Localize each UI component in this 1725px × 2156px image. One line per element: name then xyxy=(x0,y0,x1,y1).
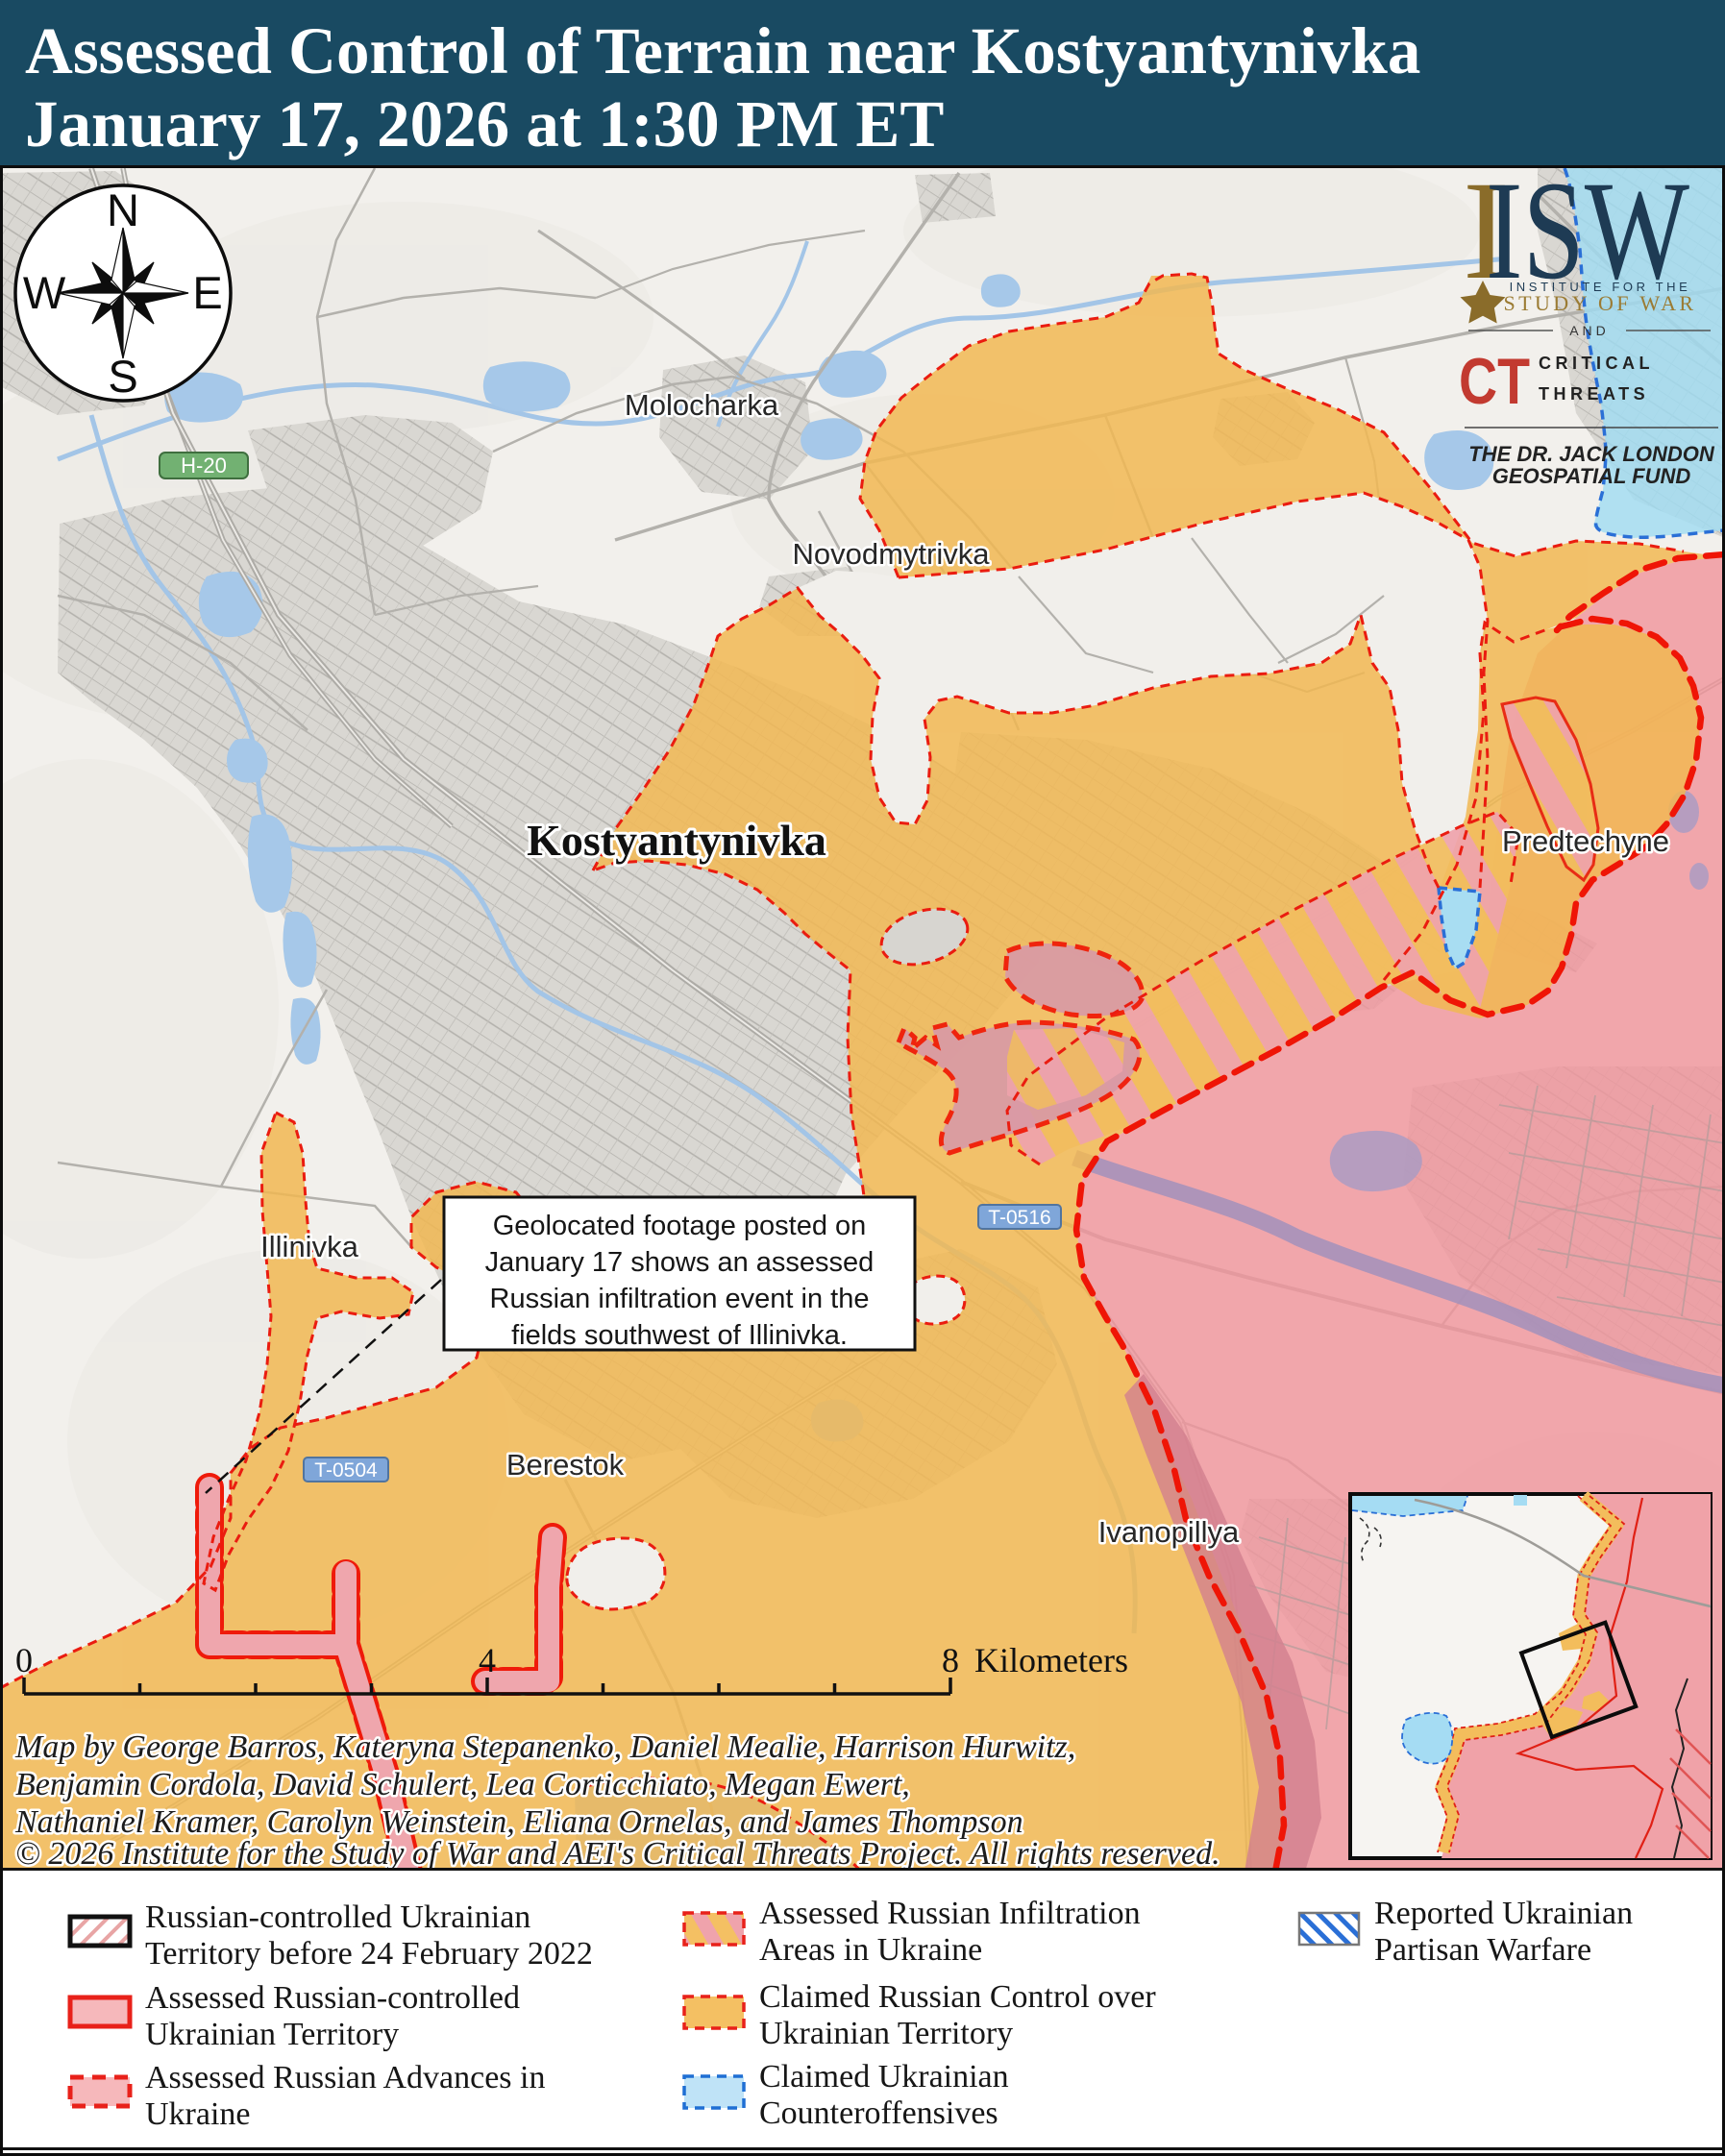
svg-text:Claimed Russian Control over: Claimed Russian Control over xyxy=(759,1979,1156,2015)
svg-text:Reported Ukrainian: Reported Ukrainian xyxy=(1374,1896,1633,1931)
svg-text:Molocharka: Molocharka xyxy=(625,388,779,422)
svg-text:© 2026 Institute for the Study: © 2026 Institute for the Study of War an… xyxy=(15,1836,1220,1868)
svg-text:AND: AND xyxy=(1569,323,1610,338)
svg-text:Ivanopillya: Ivanopillya xyxy=(1098,1515,1240,1549)
svg-text:Partisan Warfare: Partisan Warfare xyxy=(1374,1932,1591,1968)
svg-text:THE DR. JACK LONDON: THE DR. JACK LONDON xyxy=(1468,442,1715,466)
svg-text:GEOSPATIAL FUND: GEOSPATIAL FUND xyxy=(1492,464,1691,488)
svg-text:Ukrainian Territory: Ukrainian Territory xyxy=(759,2016,1013,2051)
svg-text:Assessed Russian Advances in: Assessed Russian Advances in xyxy=(145,2060,545,2095)
svg-text:Map by George Barros, Kateryna: Map by George Barros, Kateryna Stepanenk… xyxy=(14,1729,1075,1765)
svg-text:T-0504: T-0504 xyxy=(314,1459,378,1482)
svg-text:Ukrainian Territory: Ukrainian Territory xyxy=(145,2017,399,2052)
svg-text:Geolocated footage posted on: Geolocated footage posted on xyxy=(493,1211,867,1241)
svg-text:0: 0 xyxy=(15,1641,33,1679)
svg-text:Territory before 24 February 2: Territory before 24 February 2022 xyxy=(145,1936,593,1972)
svg-text:W: W xyxy=(23,267,66,318)
svg-text:CRITICAL: CRITICAL xyxy=(1539,354,1654,373)
svg-text:THREATS: THREATS xyxy=(1539,384,1649,404)
svg-text:8: 8 xyxy=(942,1641,959,1679)
svg-text:STUDY OF WAR: STUDY OF WAR xyxy=(1504,291,1697,315)
svg-text:Kilometers: Kilometers xyxy=(974,1641,1128,1679)
svg-text:Russian-controlled Ukrainian: Russian-controlled Ukrainian xyxy=(145,1899,530,1935)
svg-text:Claimed Ukrainian: Claimed Ukrainian xyxy=(759,2059,1009,2095)
svg-text:Benjamin Cordola, David Schule: Benjamin Cordola, David Schulert, Lea Co… xyxy=(15,1767,910,1802)
svg-text:S: S xyxy=(108,351,137,402)
svg-text:T-0516: T-0516 xyxy=(988,1207,1050,1229)
svg-text:Berestok: Berestok xyxy=(506,1448,625,1482)
svg-text:CT: CT xyxy=(1459,345,1530,418)
svg-text:Predtechyne: Predtechyne xyxy=(1502,824,1669,858)
svg-text:4: 4 xyxy=(479,1641,496,1679)
svg-text:E: E xyxy=(192,267,222,318)
svg-text:N: N xyxy=(107,184,139,235)
svg-text:Russian infiltration event in: Russian infiltration event in the xyxy=(490,1284,870,1314)
svg-text:H-20: H-20 xyxy=(181,453,227,478)
svg-text:Assessed Russian Infiltration: Assessed Russian Infiltration xyxy=(759,1896,1141,1931)
svg-text:fields southwest of Illinivka.: fields southwest of Illinivka. xyxy=(511,1320,848,1351)
svg-text:Assessed Russian-controlled: Assessed Russian-controlled xyxy=(145,1980,520,2016)
svg-text:Illinivka: Illinivka xyxy=(260,1230,358,1263)
svg-text:January 17 shows an assessed: January 17 shows an assessed xyxy=(485,1247,875,1278)
svg-text:Ukraine: Ukraine xyxy=(145,2096,251,2132)
svg-text:Nathaniel Kramer, Carolyn Wein: Nathaniel Kramer, Carolyn Weinstein, Eli… xyxy=(14,1804,1023,1840)
svg-text:Counteroffensives: Counteroffensives xyxy=(759,2095,998,2131)
svg-text:Kostyantynivka: Kostyantynivka xyxy=(527,816,826,865)
svg-text:Areas in Ukraine: Areas in Ukraine xyxy=(759,1932,982,1968)
svg-text:Novodmytrivka: Novodmytrivka xyxy=(793,537,991,571)
